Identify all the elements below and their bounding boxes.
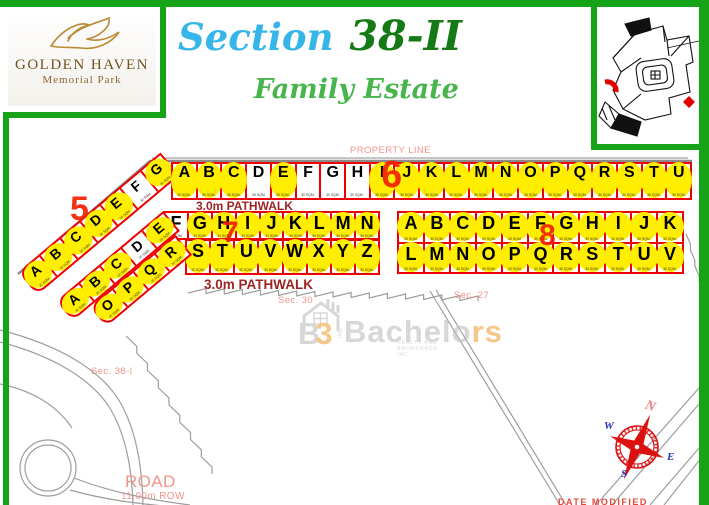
- road-label: ROAD: [125, 472, 176, 492]
- plot-sec6-E: E30 SQM.: [272, 164, 297, 198]
- plot-letter: T: [649, 165, 659, 182]
- plot-letter: Y: [337, 242, 349, 261]
- plot-area-label: 30 SQM.: [647, 192, 660, 196]
- plot-area-label: 30 SQM.: [598, 192, 611, 196]
- plot-letter: A: [404, 214, 417, 233]
- plot-area-label: 30 SQM.: [637, 266, 650, 270]
- plot-area-label: 30 SQM.: [611, 266, 624, 270]
- plot-area-label: 30 SQM.: [672, 192, 685, 196]
- plot-sec8-H: H30 SQM.: [580, 213, 606, 242]
- plot-sec8-I: I30 SQM.: [606, 213, 632, 242]
- locator-inset-map: [597, 8, 699, 144]
- section-7-row-2: S30 SQM.T30 SQM.U30 SQM.V30 SQM.W30 SQM.…: [185, 239, 380, 275]
- plot-sec6-N: N30 SQM.: [494, 164, 519, 198]
- plot-sec7-X: X30 SQM.: [308, 241, 332, 273]
- plot-letter: E: [509, 214, 521, 233]
- watermark-3: 3: [315, 316, 332, 351]
- plot-area-label: 30 SQM.: [430, 236, 443, 240]
- plot-area-label: 30 SQM.: [450, 192, 463, 196]
- dove-icon: [37, 16, 127, 54]
- plot-sec8-V: V30 SQM.: [658, 244, 682, 273]
- compass-rose-icon: [598, 398, 684, 492]
- plot-area-label: 30 SQM.: [456, 266, 469, 270]
- memorial-park-map-page: GOLDEN HAVEN Memorial Park Section38-II …: [0, 0, 709, 505]
- compass-east-label: E: [667, 451, 674, 463]
- plot-sec8-J: J30 SQM.: [632, 213, 658, 242]
- plot-sec6-C: C30 SQM.: [222, 164, 247, 198]
- plot-area-label: 30 SQM.: [288, 267, 301, 271]
- plot-area-label: 30 SQM.: [534, 266, 547, 270]
- plot-sec6-F: F30 SQM.: [297, 164, 322, 198]
- watermark-tagline: REALTY AND BROKERAGE INC: [397, 340, 438, 358]
- plot-sec8-L: L30 SQM.: [399, 244, 425, 273]
- plot-sec8-N: N30 SQM.: [451, 244, 477, 273]
- plot-area-label: 30 SQM.: [456, 236, 469, 240]
- plot-area-label: 30 SQM.: [360, 233, 373, 237]
- title-section-number: 38-II: [350, 12, 462, 60]
- plot-area-label: 30 SQM.: [289, 233, 302, 237]
- compass-west-label: W: [604, 420, 614, 432]
- plot-letter: G: [147, 160, 165, 178]
- plot-letter: E: [108, 195, 125, 212]
- plot-area-label: 30 SQM.: [425, 192, 438, 196]
- plot-area-label: 30 SQM.: [611, 236, 624, 240]
- plot-sec8-U: U30 SQM.: [632, 244, 658, 273]
- plot-area-label: 30 SQM.: [326, 192, 339, 196]
- plot-sec6-T: T30 SQM.: [643, 164, 668, 198]
- plot-letter: I: [245, 214, 250, 233]
- plot-area-label: 30 SQM.: [404, 266, 417, 270]
- plot-sec8-C: C30 SQM.: [451, 213, 477, 242]
- plot-letter: U: [240, 242, 253, 261]
- plot-area-label: 30 SQM.: [301, 192, 314, 196]
- plot-area-label: 30 SQM.: [240, 267, 253, 271]
- plot-sec8-M: M30 SQM.: [425, 244, 451, 273]
- plot-sec6-O: O30 SQM.: [519, 164, 544, 198]
- plot-letter: M: [429, 245, 444, 264]
- plot-sec7-L: L30 SQM.: [308, 213, 332, 238]
- plot-sec7-M: M30 SQM.: [332, 213, 356, 238]
- plot-sec7-V: V30 SQM.: [259, 241, 283, 273]
- plot-sec6-L: L30 SQM.: [445, 164, 470, 198]
- plot-sec6-U: U30 SQM.: [667, 164, 690, 198]
- plot-letter: I: [616, 214, 621, 233]
- page-title: Section38-II: [178, 12, 462, 60]
- plot-area-label: 30 SQM.: [264, 267, 277, 271]
- plot-sec7-G: G30 SQM.: [189, 213, 213, 238]
- section-number-8: 8: [539, 221, 556, 251]
- plot-area-label: 30 SQM.: [548, 192, 561, 196]
- plot-sec6-G: G30 SQM.: [321, 164, 346, 198]
- plot-sec6-Q: Q30 SQM.: [569, 164, 594, 198]
- plot-area-label: 30 SQM.: [482, 266, 495, 270]
- plot-sec8-P: P30 SQM.: [503, 244, 529, 273]
- plot-letter: D: [87, 211, 104, 229]
- plot-area-label: 30 SQM.: [191, 267, 204, 271]
- plot-letter: S: [586, 245, 598, 264]
- section-number-7: 7: [222, 218, 239, 248]
- plot-area-label: 30 SQM.: [430, 266, 443, 270]
- plot-letter: K: [664, 214, 677, 233]
- plot-area-label: 30 SQM.: [252, 192, 265, 196]
- plot-letter: M: [336, 214, 351, 233]
- plot-area-label: 30 SQM.: [227, 192, 240, 196]
- logo-line2: Memorial Park: [8, 74, 156, 86]
- plot-area-label: 30 SQM.: [336, 233, 349, 237]
- plot-sec8-G: G30 SQM.: [554, 213, 580, 242]
- plot-letter: F: [128, 178, 144, 195]
- plot-area-label: 30 SQM.: [351, 192, 364, 196]
- plot-letter: L: [451, 165, 461, 182]
- frame-left: [3, 112, 9, 505]
- frame-inset-h: [591, 144, 703, 150]
- plot-sec6-R: R30 SQM.: [593, 164, 618, 198]
- section-6-plot-row: A30 SQM.B30 SQM.C30 SQM.D30 SQM.E30 SQM.…: [171, 162, 692, 200]
- plot-sec8-O: O30 SQM.: [477, 244, 503, 273]
- plot-letter: N: [361, 214, 374, 233]
- plot-sec8-A: A30 SQM.: [399, 213, 425, 242]
- plot-letter: K: [426, 165, 438, 182]
- plot-letter: Z: [361, 242, 372, 261]
- frame-top: [0, 0, 709, 7]
- plot-area-label: 30 SQM.: [623, 192, 636, 196]
- plot-letter: G: [326, 165, 338, 182]
- section-number-5: 5: [70, 192, 89, 226]
- plot-letter: H: [352, 165, 364, 182]
- sec-38i-label: Sec. 38-I: [91, 366, 133, 377]
- plot-area-label: 30 SQM.: [312, 267, 325, 271]
- plot-letter: A: [179, 165, 191, 182]
- plot-area-label: 30 SQM.: [265, 233, 278, 237]
- plot-sec7-U: U30 SQM.: [235, 241, 259, 273]
- frame-logo-notch-h: [3, 112, 166, 118]
- frame-right: [699, 0, 709, 505]
- plot-area-label: 30 SQM.: [202, 192, 215, 196]
- plot-area-label: 30 SQM.: [360, 267, 373, 271]
- plot-sec7-I: I30 SQM.: [237, 213, 261, 238]
- plot-letter: R: [599, 165, 611, 182]
- plot-sec8-D: D30 SQM.: [477, 213, 503, 242]
- plot-letter: B: [203, 165, 215, 182]
- plot-area-label: 30 SQM.: [474, 192, 487, 196]
- plot-letter: R: [560, 245, 573, 264]
- plot-letter: F: [303, 165, 313, 182]
- plot-sec7-W: W30 SQM.: [284, 241, 308, 273]
- plot-sec6-K: K30 SQM.: [420, 164, 445, 198]
- plot-letter: G: [559, 214, 573, 233]
- plot-letter: N: [456, 245, 469, 264]
- plot-area-label: 30 SQM.: [215, 267, 228, 271]
- inset-highlight-red: [605, 82, 616, 92]
- plot-letter: U: [638, 245, 651, 264]
- plot-letter: V: [264, 242, 276, 261]
- plot-letter: O: [482, 245, 496, 264]
- plot-letter: C: [67, 228, 84, 246]
- pathwalk-label-2: 3.0m PATHWALK: [204, 277, 313, 292]
- plot-letter: X: [313, 242, 325, 261]
- plot-area-label: 30 SQM.: [241, 233, 254, 237]
- plot-sec6-H: H30 SQM.: [346, 164, 371, 198]
- plot-letter: J: [267, 214, 277, 233]
- plot-area-label: 30 SQM.: [336, 267, 349, 271]
- plot-letter: P: [509, 245, 521, 264]
- section-number-6: 6: [381, 156, 402, 194]
- plot-area-label: 30 SQM.: [586, 266, 599, 270]
- plot-sec7-Y: Y30 SQM.: [332, 241, 356, 273]
- sec-27-label: Sec. 27: [454, 290, 489, 301]
- plot-area-label: 30 SQM.: [404, 236, 417, 240]
- inset-marker-diamond: [683, 96, 695, 108]
- plot-sec8-R: R30 SQM.: [554, 244, 580, 273]
- plot-area-label: 30 SQM.: [524, 192, 537, 196]
- plot-sec7-N: N30 SQM.: [356, 213, 378, 238]
- plot-letter: G: [193, 214, 207, 233]
- plot-sec8-S: S30 SQM.: [580, 244, 606, 273]
- plot-letter: S: [624, 165, 635, 182]
- plot-letter: P: [550, 165, 561, 182]
- section-7-row-1: F30 SQM.G30 SQM.H30 SQM.I30 SQM.J30 SQM.…: [163, 211, 380, 240]
- plot-area-label: 30 SQM.: [560, 266, 573, 270]
- plot-sec6-B: B30 SQM.: [198, 164, 223, 198]
- plot-sec6-A: A30 SQM.: [173, 164, 198, 198]
- plot-letter: K: [289, 214, 302, 233]
- plot-letter: D: [253, 165, 265, 182]
- plot-area-label: 30 SQM.: [178, 192, 191, 196]
- plot-letter: W: [286, 242, 303, 261]
- plot-area-label: 30 SQM.: [637, 236, 650, 240]
- plot-letter: B: [430, 214, 443, 233]
- page-subtitle: Family Estate: [254, 74, 459, 105]
- plot-sec6-M: M30 SQM.: [470, 164, 495, 198]
- plot-sec7-Z: Z30 SQM.: [356, 241, 378, 273]
- plot-area-label: 30 SQM.: [313, 233, 326, 237]
- plot-letter: O: [524, 165, 536, 182]
- plot-letter: D: [482, 214, 495, 233]
- logo-line1: GOLDEN HAVEN: [8, 57, 156, 74]
- plot-letter: C: [456, 214, 469, 233]
- plot-letter: H: [586, 214, 599, 233]
- plot-letter: A: [27, 262, 44, 280]
- plot-sec7-J: J30 SQM.: [261, 213, 285, 238]
- property-line-label: PROPERTY LINE: [350, 145, 431, 156]
- plot-letter: J: [639, 214, 649, 233]
- plot-area-label: 30 SQM.: [277, 192, 290, 196]
- plot-sec6-P: P30 SQM.: [544, 164, 569, 198]
- plot-letter: C: [228, 165, 240, 182]
- plot-area-label: 30 SQM.: [499, 192, 512, 196]
- frame-inset-v: [591, 7, 597, 150]
- plot-area-label: 30 SQM.: [560, 236, 573, 240]
- plot-sec6-D: D30 SQM.: [247, 164, 272, 198]
- watermark-b3: B3: [298, 318, 333, 349]
- plot-letter: E: [278, 165, 289, 182]
- sec-30-label: Sec. 30: [278, 295, 313, 306]
- plot-sec8-E: E30 SQM.: [503, 213, 529, 242]
- plot-letter: T: [613, 245, 624, 264]
- watermark-name-orange: rs: [472, 314, 503, 349]
- plot-letter: V: [664, 245, 676, 264]
- plot-letter: U: [673, 165, 685, 182]
- title-section-word: Section: [178, 15, 334, 59]
- plot-letter: Q: [574, 165, 586, 182]
- plot-area-label: 30 SQM.: [508, 236, 521, 240]
- plot-area-label: 30 SQM.: [573, 192, 586, 196]
- plot-sec8-B: B30 SQM.: [425, 213, 451, 242]
- plot-sec7-K: K30 SQM.: [284, 213, 308, 238]
- plot-area-label: 30 SQM.: [586, 236, 599, 240]
- plot-sec8-T: T30 SQM.: [606, 244, 632, 273]
- stepped-boundary-line: [126, 336, 212, 474]
- frame-logo-notch-v: [160, 7, 166, 118]
- plot-sec6-S: S30 SQM.: [618, 164, 643, 198]
- plot-letter: M: [474, 165, 487, 182]
- golden-haven-logo: GOLDEN HAVEN Memorial Park: [8, 14, 156, 106]
- road-row-label: 11.00m ROW: [121, 491, 185, 502]
- plot-sec8-K: K30 SQM.: [658, 213, 682, 242]
- plot-area-label: 30 SQM.: [482, 236, 495, 240]
- plot-letter: B: [47, 245, 64, 263]
- date-modified-label: DATE MODIFIED: [558, 497, 648, 505]
- plot-area-label: 30 SQM.: [663, 236, 676, 240]
- plot-area-label: 30 SQM.: [663, 266, 676, 270]
- plot-letter: L: [405, 245, 416, 264]
- plot-area-label: 30 SQM.: [508, 266, 521, 270]
- plot-letter: L: [314, 214, 325, 233]
- plot-letter: N: [500, 165, 512, 182]
- plot-letter: J: [402, 165, 411, 182]
- pathwalk-label-1: 3.0m PATHWALK: [196, 199, 293, 213]
- plot-area-label: 30 SQM.: [193, 233, 206, 237]
- compass-south-label: S: [621, 468, 627, 480]
